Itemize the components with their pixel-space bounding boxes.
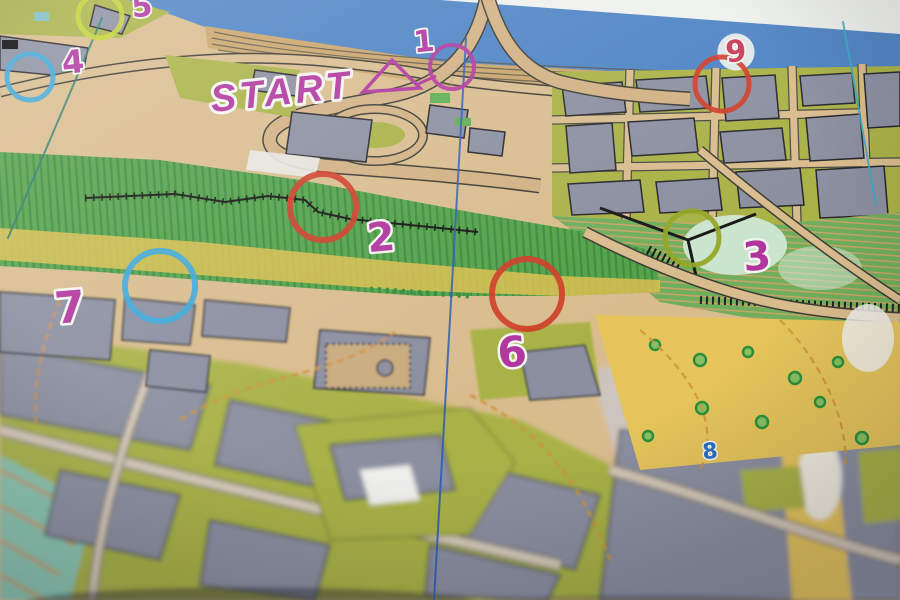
photo-vignette xyxy=(0,0,900,600)
photo-of-sprint-orienteering-map: 123456789 START xyxy=(0,0,900,600)
